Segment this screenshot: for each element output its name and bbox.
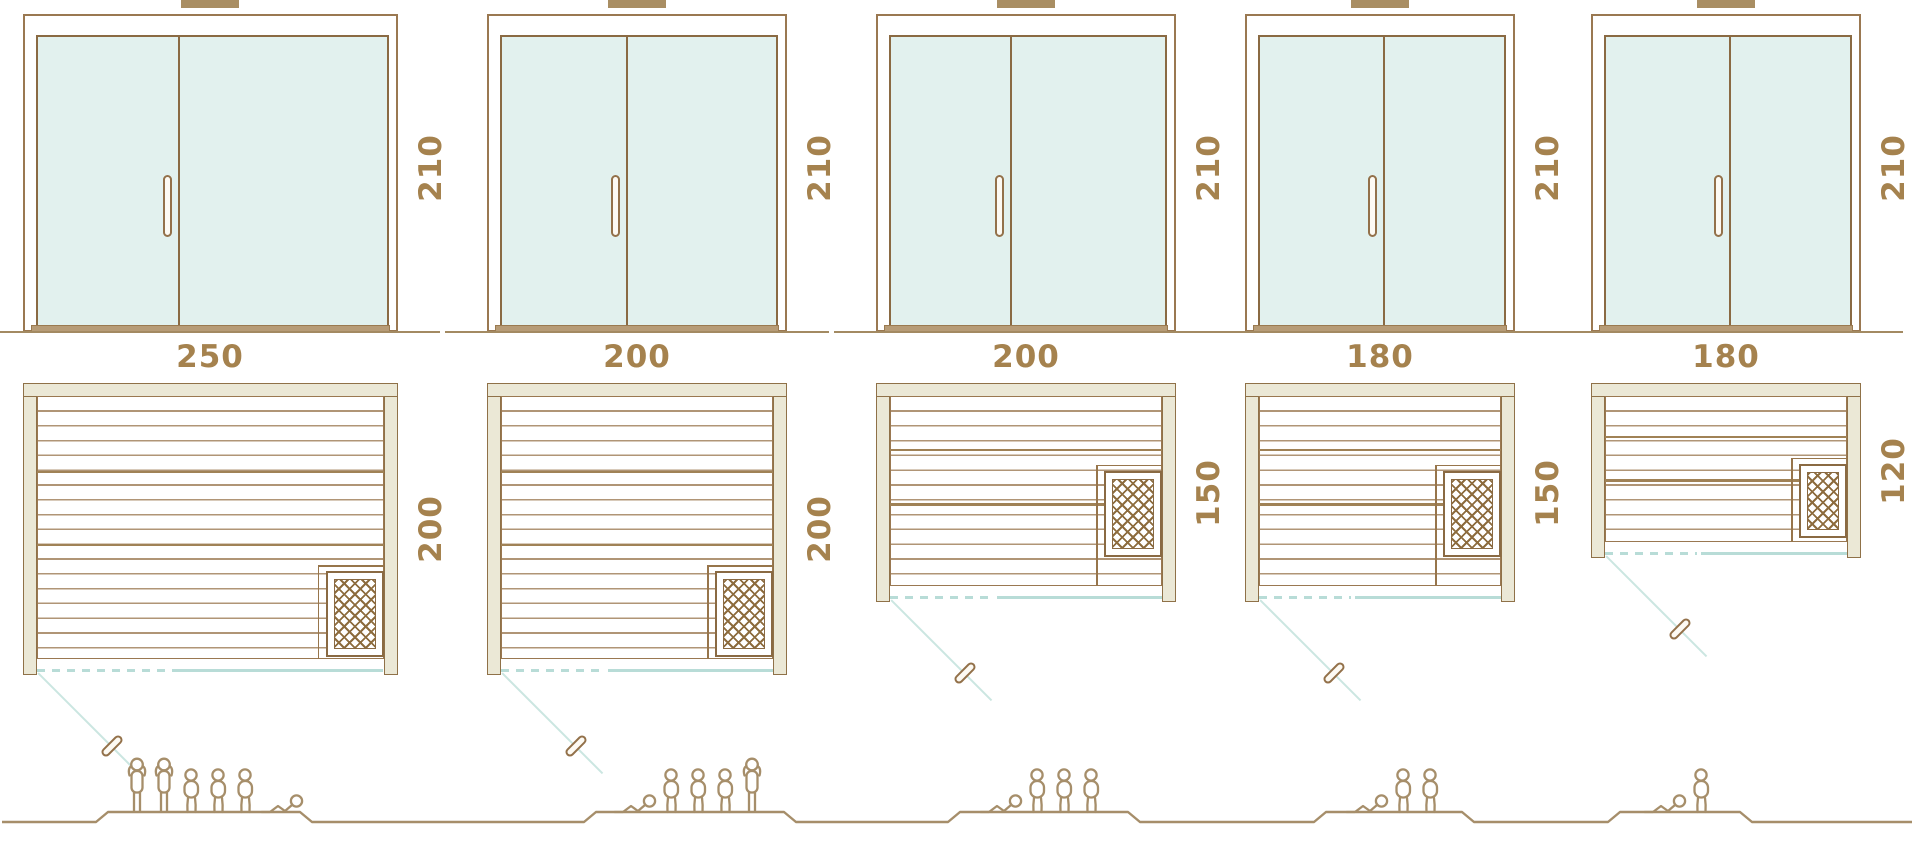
bench-edge-line (501, 471, 773, 473)
bench-edge-line (501, 544, 773, 546)
ground-profile-line (2, 812, 1912, 822)
heater-grate (1807, 472, 1839, 530)
width-dimension-label: 200 (603, 339, 671, 375)
front-elevation (1591, 14, 1861, 332)
heater-grate (1112, 479, 1154, 549)
bench-edge-line (37, 544, 384, 546)
seated-person-icon (1058, 769, 1072, 812)
glass-double-door (36, 35, 389, 330)
glass-pane-left (1260, 37, 1384, 328)
glass-double-door (500, 35, 778, 330)
width-dimension-label: 200 (992, 339, 1060, 375)
door-divider (1010, 37, 1012, 328)
depth-dimension-label: 120 (1876, 437, 1912, 505)
heater-grate (334, 579, 376, 649)
plan-right-post (1501, 383, 1515, 602)
depth-dimension-label: 150 (1191, 459, 1227, 527)
glass-pane-right (1007, 37, 1165, 328)
standing-person-icon (744, 759, 760, 812)
glass-double-door (1258, 35, 1506, 330)
ground-line (834, 331, 1218, 333)
depth-dimension-label: 200 (413, 495, 449, 563)
plan-top-frame (876, 383, 1176, 397)
door-handle (163, 175, 172, 237)
glass-wall-line (1701, 552, 1847, 555)
plan-top-frame (1245, 383, 1515, 397)
seated-person-icon (719, 769, 733, 812)
heater-grate (1451, 479, 1493, 549)
plan-right-post (773, 383, 787, 675)
seated-person-icon (692, 769, 706, 812)
heater (1443, 471, 1501, 557)
reclining-person-icon (981, 795, 1022, 812)
bench-partition-line (1096, 465, 1162, 467)
roof-vent (1697, 0, 1755, 8)
seated-person-icon (1695, 769, 1709, 812)
reclining-person-icon (262, 795, 303, 812)
door-swing-line (1259, 599, 1361, 701)
plan-top-frame (1591, 383, 1861, 397)
capacity-group (1347, 769, 1438, 812)
bench-edge-line (37, 471, 384, 473)
seated-person-icon (665, 769, 679, 812)
glass-double-door (1604, 35, 1852, 330)
plan-left-post (1591, 383, 1605, 558)
width-dimension-label: 180 (1346, 339, 1414, 375)
door-divider (178, 37, 180, 328)
plan-right-post (1847, 383, 1861, 558)
heater-grate (723, 579, 765, 649)
seated-person-icon (185, 769, 199, 812)
roof-vent (608, 0, 666, 8)
capacity-group (981, 769, 1099, 812)
bench-partition-line (1435, 465, 1437, 586)
glass-wall-line (172, 669, 383, 672)
capacity-group (1645, 769, 1709, 812)
glass-pane-left (502, 37, 627, 328)
door-divider (1383, 37, 1385, 328)
heater (1799, 464, 1847, 538)
door-handle (1368, 175, 1377, 237)
height-dimension-label: 210 (1191, 134, 1227, 202)
door-divider (1729, 37, 1731, 328)
sauna-comparison-diagram: 2102502002102002002102001502101801502101… (0, 0, 1920, 856)
front-elevation (487, 14, 787, 332)
plan-top-frame (487, 383, 787, 397)
door-divider (626, 37, 628, 328)
plan-left-post (487, 383, 501, 675)
plan-top-frame (23, 383, 398, 397)
width-dimension-label: 250 (176, 339, 244, 375)
depth-dimension-label: 200 (802, 495, 838, 563)
plan-left-post (1245, 383, 1259, 602)
glass-pane-left (1606, 37, 1730, 328)
glass-pane-right (623, 37, 776, 328)
bench-partition-line (1791, 458, 1847, 460)
height-dimension-label: 210 (802, 134, 838, 202)
door-opening-dashed-line (1605, 552, 1697, 555)
door-handle (995, 175, 1004, 237)
bench-partition-line (1435, 465, 1501, 467)
glass-wall-line (608, 669, 773, 672)
glass-pane-left (38, 37, 179, 328)
glass-double-door (889, 35, 1167, 330)
glass-wall-line (997, 596, 1162, 599)
heater (1104, 471, 1162, 557)
seated-person-icon (1424, 769, 1438, 812)
roof-vent (1351, 0, 1409, 8)
reclining-person-icon (615, 795, 656, 812)
ground-line (0, 331, 440, 333)
glass-pane-right (175, 37, 387, 328)
height-dimension-label: 210 (1530, 134, 1566, 202)
bench-partition-line (318, 565, 320, 659)
bench-edge-line (890, 449, 1162, 451)
ground-line (445, 331, 829, 333)
reclining-person-icon (1645, 795, 1686, 812)
glass-pane-right (1726, 37, 1850, 328)
bench-edge-line (1259, 449, 1501, 451)
bench-partition-line (707, 565, 773, 567)
standing-person-icon (129, 759, 145, 812)
capacity-group (615, 759, 761, 812)
bench-partition-line (1096, 465, 1098, 586)
bench-partition-line (1791, 458, 1793, 543)
bench-partition-line (707, 565, 709, 659)
front-elevation (1245, 14, 1515, 332)
plan-right-post (384, 383, 398, 675)
height-dimension-label: 210 (413, 134, 449, 202)
seated-person-icon (239, 769, 253, 812)
reclining-person-icon (1347, 795, 1388, 812)
glass-wall-line (1355, 596, 1501, 599)
heater (715, 571, 773, 657)
door-opening-dashed-line (37, 669, 169, 672)
seated-person-icon (212, 769, 226, 812)
capacity-figures-strip (0, 748, 1920, 856)
seated-person-icon (1031, 769, 1045, 812)
height-dimension-label: 210 (1876, 134, 1912, 202)
plan-left-post (876, 383, 890, 602)
door-swing-line (1605, 556, 1707, 658)
plan-left-post (23, 383, 37, 675)
door-opening-dashed-line (1259, 596, 1351, 599)
glass-pane-right (1380, 37, 1504, 328)
seated-person-icon (1397, 769, 1411, 812)
seated-person-icon (1085, 769, 1099, 812)
ground-line (1549, 331, 1903, 333)
door-handle (1714, 175, 1723, 237)
roof-vent (181, 0, 239, 8)
ground-line (1203, 331, 1557, 333)
glass-pane-left (891, 37, 1011, 328)
bench-partition-line (318, 565, 384, 567)
roof-vent (997, 0, 1055, 8)
door-opening-dashed-line (501, 669, 604, 672)
bench-edge-line (1605, 436, 1847, 438)
door-handle (611, 175, 620, 237)
standing-person-icon (156, 759, 172, 812)
capacity-group (129, 759, 302, 812)
front-elevation (23, 14, 398, 332)
width-dimension-label: 180 (1692, 339, 1760, 375)
depth-dimension-label: 150 (1530, 459, 1566, 527)
heater (326, 571, 384, 657)
door-opening-dashed-line (890, 596, 993, 599)
door-swing-line (890, 599, 992, 701)
plan-right-post (1162, 383, 1176, 602)
front-elevation (876, 14, 1176, 332)
